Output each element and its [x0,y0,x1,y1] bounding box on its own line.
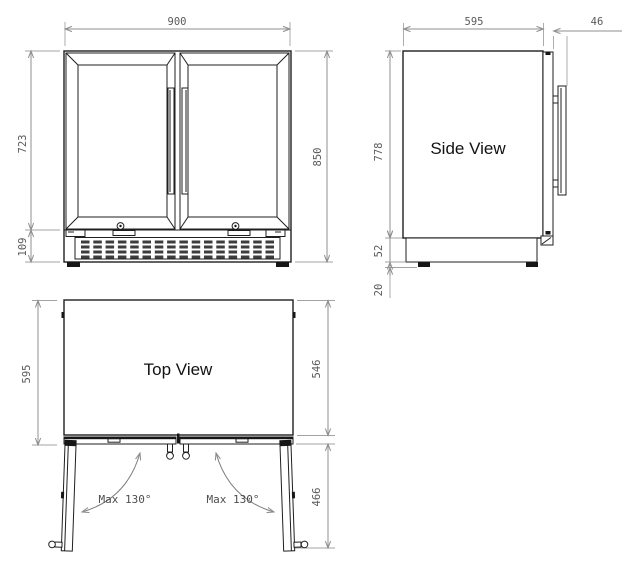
top-left-hinge-pin [62,312,65,318]
dim-label-850: 850 [312,148,324,167]
dim-label-46: 46 [591,16,604,28]
dim-label-900: 900 [168,16,187,28]
dim-label-778: 778 [373,143,385,162]
front-left-door-handle [168,88,174,194]
front-right-door-handle [182,88,188,194]
front-view: 900 723 109 850 [17,16,333,267]
top-right-hinge-pin [293,312,296,318]
side-door-handle [553,86,566,195]
side-view-label: Side View [430,139,506,158]
side-plinth [406,238,537,262]
side-front-foot [418,262,430,267]
right-door-lock [232,223,239,230]
right-open-door [279,439,308,551]
side-view: 595 46 778 52 20 Side View [373,16,622,298]
left-door-lock [117,223,124,230]
dim-label-723: 723 [17,135,29,154]
front-left-foot [67,262,80,267]
front-left-door [66,53,175,229]
top-left-handle [167,444,174,459]
front-right-door [180,53,289,229]
dim-label-595-top: 595 [21,365,33,384]
side-door [541,52,553,246]
side-rear-foot [526,262,538,267]
dim-label-109: 109 [17,238,29,257]
dim-label-546: 546 [311,360,323,379]
left-open-door [49,439,77,551]
appliance-dimension-drawing: 900 723 109 850 [0,0,626,572]
top-view-label: Top View [144,360,213,379]
right-swing-label: Max 130° [207,493,260,506]
top-view: 595 546 466 Top View [21,300,335,551]
dim-label-20: 20 [373,284,385,297]
closed-doors [64,434,293,460]
top-right-handle [183,444,190,459]
dim-label-52: 52 [373,245,385,258]
left-swing-label: Max 130° [99,493,152,506]
drawing-canvas: 900 723 109 850 [0,0,626,572]
dim-label-595-side: 595 [465,16,484,28]
vent-grille [75,238,280,260]
dim-label-466: 466 [311,488,323,507]
front-right-foot [276,262,289,267]
